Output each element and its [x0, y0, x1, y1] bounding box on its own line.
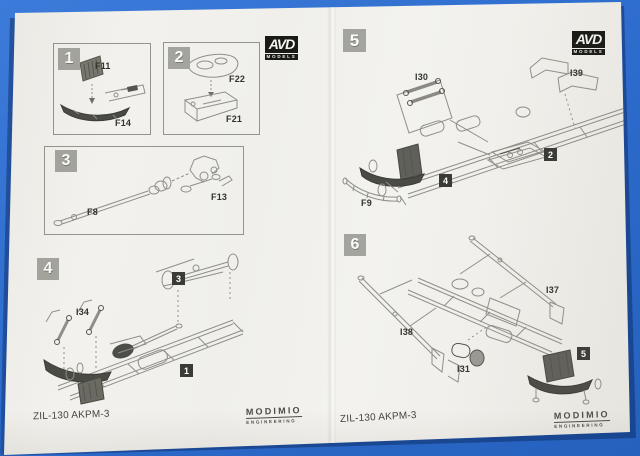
part-label-I37: I37 — [546, 285, 559, 295]
center-fold-crease — [327, 0, 336, 456]
instruction-sheet: AVD MODELS 1 F11 F14 2 F22 F21 — [0, 0, 640, 456]
step-4-number: 4 — [37, 258, 59, 280]
part-label-I31: I31 — [457, 364, 470, 374]
modimio-logo-right: MODIMIO ENGINEERING — [554, 409, 611, 429]
step-5-diagram — [340, 50, 635, 215]
step-6-diagram — [340, 232, 635, 404]
step-1-number: 1 — [58, 48, 80, 70]
part-label-F21: F21 — [226, 114, 242, 124]
kit-title-right: ZIL-130 AKPM-3 — [340, 410, 417, 425]
assembly-ref-badge-5: 5 — [577, 347, 590, 360]
step-2-number: 2 — [168, 47, 190, 69]
avd-logo-text: AVD — [572, 31, 605, 48]
kit-title-left: ZIL-130 AKPM-3 — [33, 409, 110, 423]
part-label-F22: F22 — [229, 74, 245, 84]
modimio-logo-left: MODIMIO ENGINEERING — [246, 405, 303, 425]
part-label-F14: F14 — [115, 118, 131, 128]
step-4-diagram — [28, 252, 260, 404]
assembly-ref-badge-4: 4 — [439, 174, 452, 187]
avd-logo-subtext: MODELS — [265, 54, 298, 60]
part-label-F8: F8 — [87, 207, 98, 217]
step-5-number: 5 — [343, 29, 366, 52]
part-label-I38: I38 — [400, 327, 413, 337]
photo-backdrop: { "sheet": { "kit_name_left": "ZIL-130 A… — [0, 0, 640, 456]
part-label-I34: I34 — [76, 307, 89, 317]
modimio-logo-subtext: ENGINEERING — [246, 418, 302, 425]
part-label-I39: I39 — [570, 68, 583, 78]
assembly-ref-badge-2: 2 — [544, 148, 557, 161]
part-label-F13: F13 — [211, 192, 227, 202]
assembly-ref-badge-1: 1 — [180, 364, 193, 377]
part-label-F9: F9 — [361, 198, 372, 208]
modimio-logo-text: MODIMIO — [554, 409, 610, 423]
avd-models-logo-left: AVD MODELS — [265, 36, 298, 60]
step-3-number: 3 — [55, 150, 77, 172]
part-label-I30: I30 — [415, 72, 428, 82]
modimio-logo-subtext: ENGINEERING — [554, 422, 610, 429]
part-label-F11: F11 — [95, 61, 111, 71]
modimio-logo-text: MODIMIO — [246, 405, 302, 419]
avd-logo-text: AVD — [265, 36, 298, 53]
assembly-ref-badge-3: 3 — [172, 272, 185, 285]
step-6-number: 6 — [344, 234, 366, 256]
